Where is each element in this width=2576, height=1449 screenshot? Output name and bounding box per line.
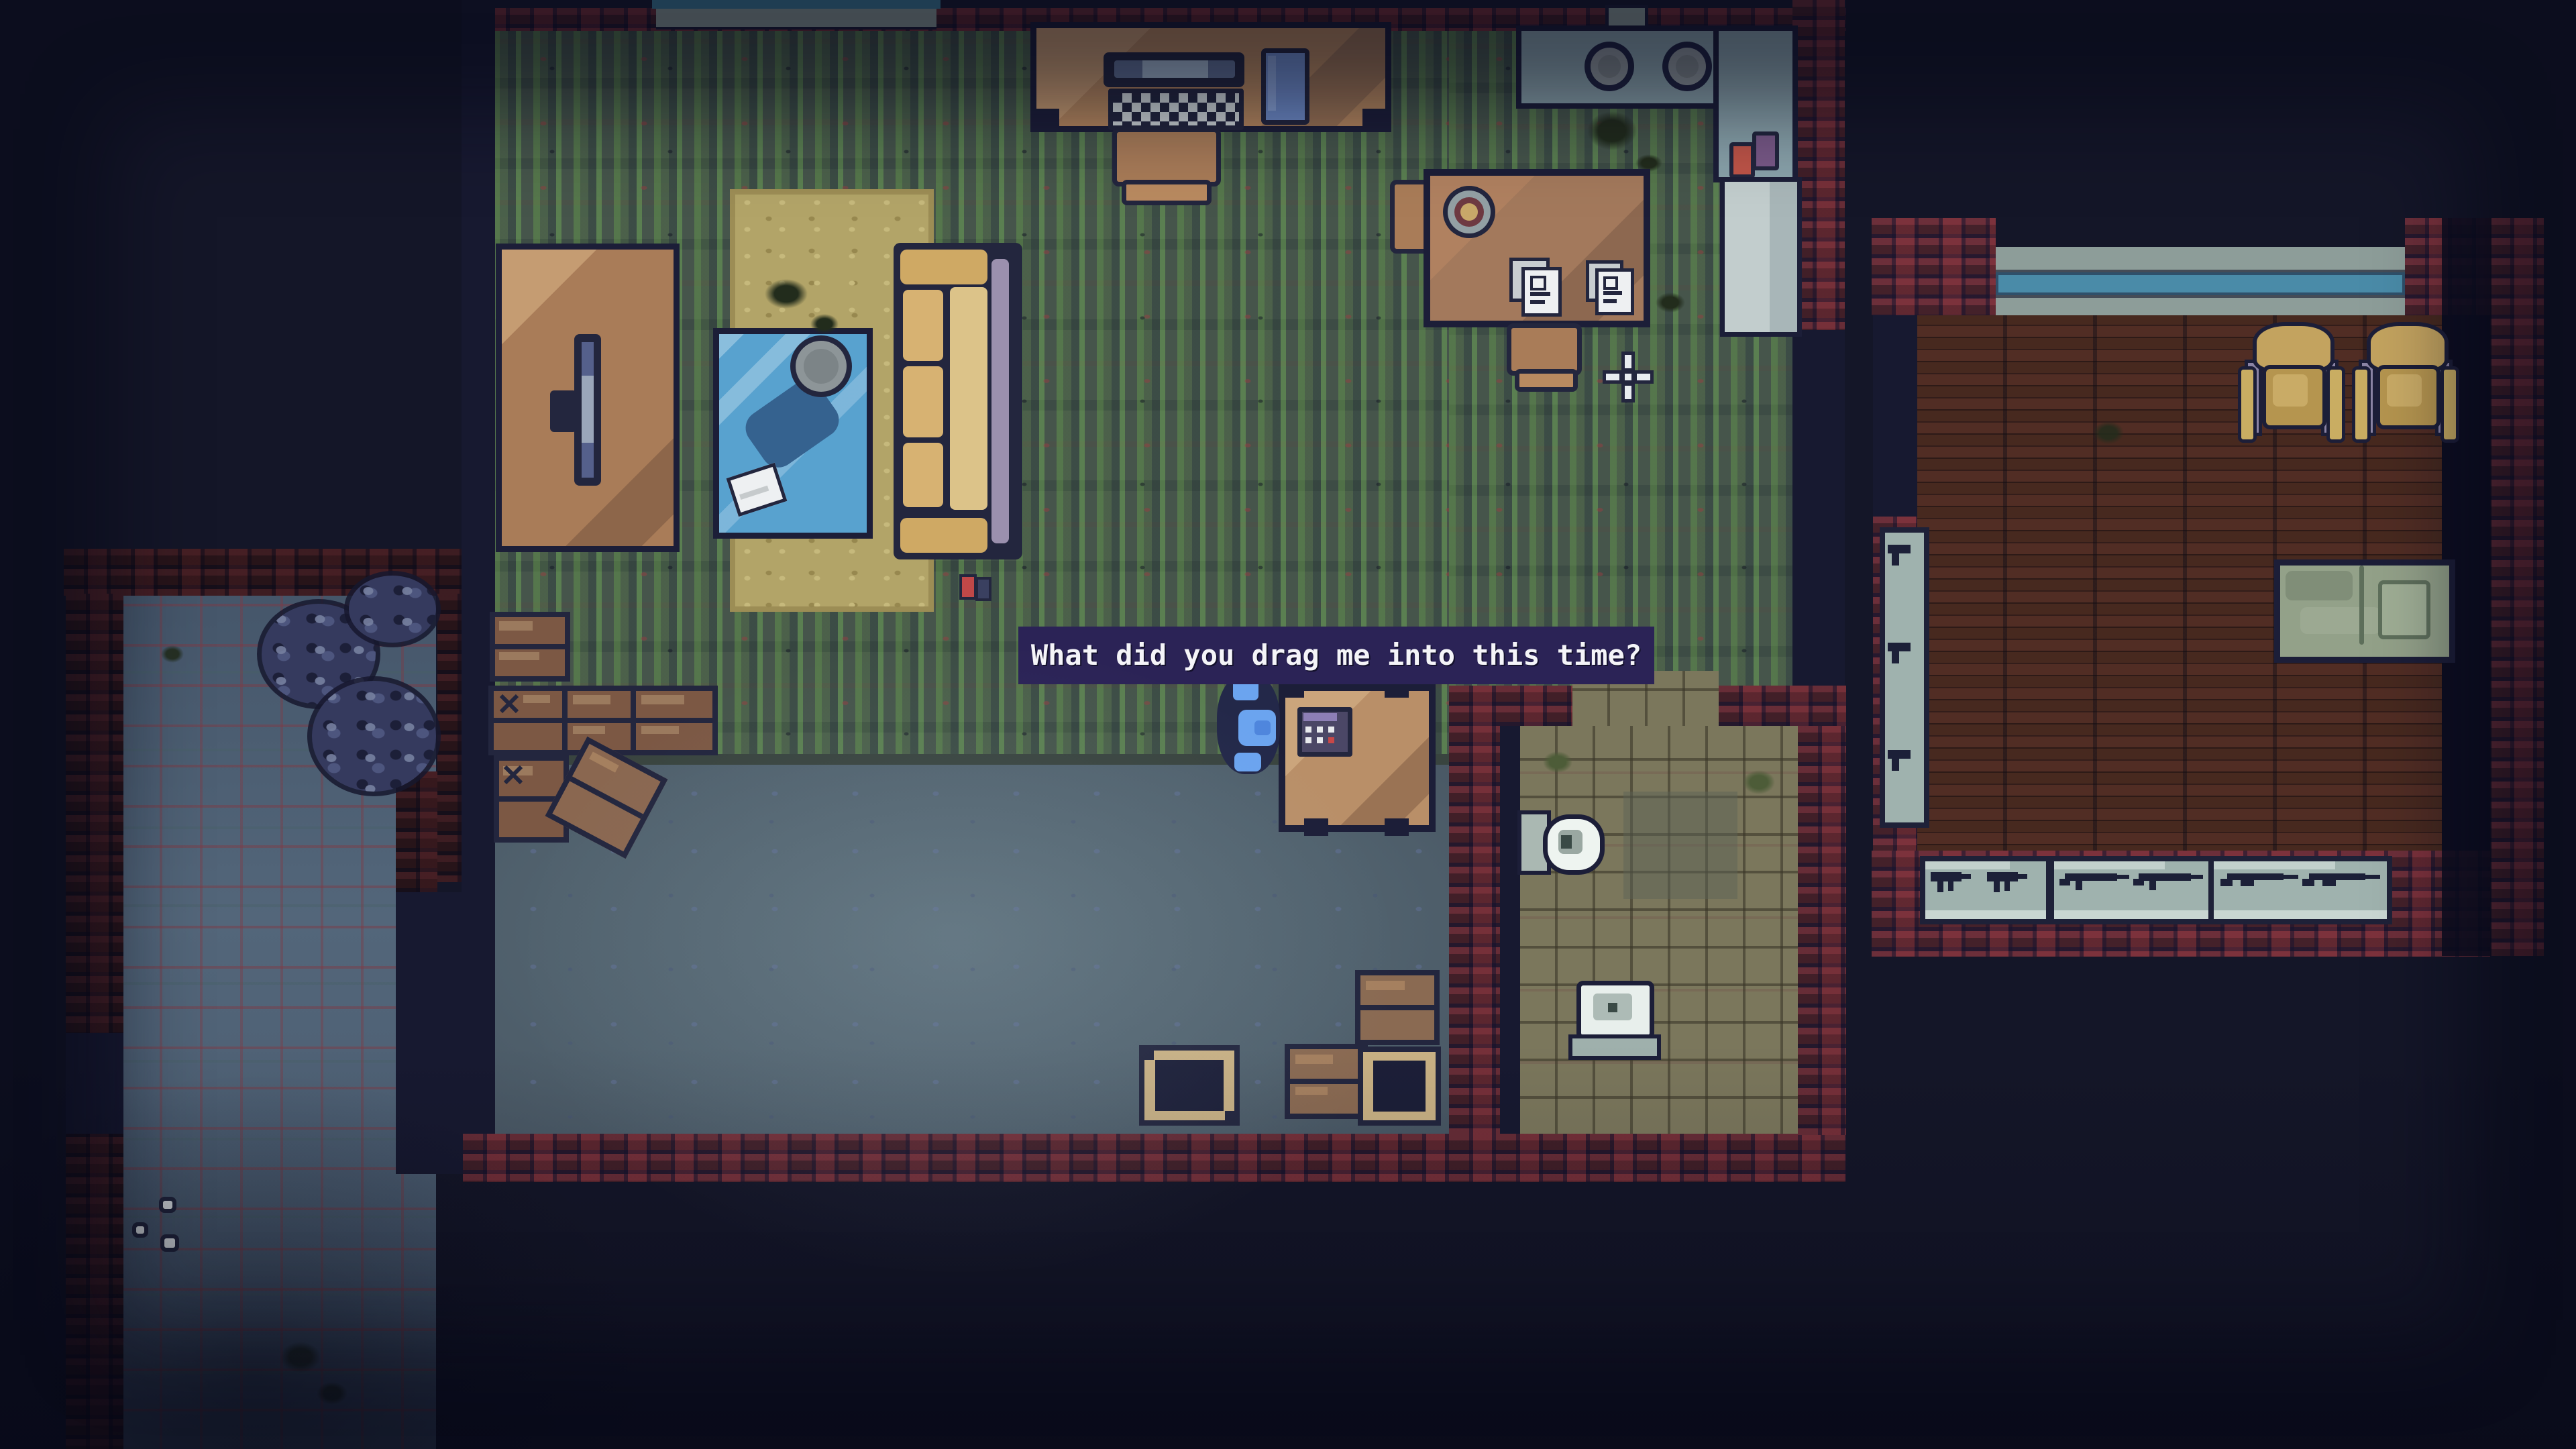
wall-gun-case[interactable]: [1880, 527, 1929, 828]
dialogue-text: What did you drag me into this time?: [1031, 639, 1642, 672]
bush[interactable]: [312, 681, 436, 792]
bathroom-wall-right: [1798, 726, 1846, 1135]
crate[interactable]: [1355, 970, 1440, 1045]
dirt-mark: [1635, 154, 1662, 172]
alley-wall-stub: [396, 771, 437, 892]
wall-bottom: [463, 1134, 1846, 1182]
bedroom-window: [1996, 247, 2405, 315]
debris: [280, 1342, 321, 1373]
debris: [317, 1382, 347, 1405]
pistol-icon: [1888, 640, 1915, 667]
sink[interactable]: [1568, 981, 1653, 1052]
crate[interactable]: [1285, 1044, 1368, 1119]
bathroom-wall-shadow: [1500, 726, 1520, 1134]
alley-wall-top: [64, 549, 493, 596]
tablet[interactable]: [1261, 48, 1309, 125]
armchair[interactable]: [2353, 319, 2455, 440]
monitor[interactable]: [1104, 52, 1244, 87]
desk-chair[interactable]: [1112, 127, 1221, 186]
pebble: [136, 1226, 144, 1234]
dark-item[interactable]: [975, 577, 991, 601]
bedroom-wall-right: [2490, 218, 2544, 956]
smg-icon: [1931, 867, 1982, 898]
crate-x[interactable]: [488, 686, 570, 755]
leaf-debris: [161, 645, 184, 663]
pistol-icon: [1888, 747, 1915, 774]
pillow: [2378, 580, 2430, 639]
shotgun-icon: [2220, 867, 2298, 898]
wall-left: [462, 0, 495, 1135]
player-character[interactable]: [1217, 674, 1280, 774]
bathroom-tile-patch: [1623, 792, 1737, 899]
bathroom-wall-left: [1449, 686, 1500, 1135]
smg-display-case[interactable]: [1920, 856, 2051, 924]
dining-chair-bottom-back[interactable]: [1515, 369, 1578, 392]
kitchen-window: [1609, 8, 1645, 30]
desk-chair-back[interactable]: [1122, 180, 1212, 205]
tv-mount: [550, 390, 577, 432]
crosshair-cursor: [1606, 355, 1650, 399]
open-crate[interactable]: [1358, 1046, 1441, 1126]
alley-wall-left: [66, 594, 123, 1449]
couch[interactable]: [894, 243, 1022, 559]
pebble: [164, 1238, 175, 1248]
hall-shadow-right: [1792, 330, 1845, 686]
pebble: [163, 1201, 172, 1209]
dirt-mark: [810, 314, 839, 334]
dirt-mark: [1656, 292, 1685, 313]
mug[interactable]: [1448, 191, 1491, 233]
calculator[interactable]: [1297, 707, 1352, 757]
open-crate[interactable]: [1139, 1045, 1240, 1126]
dialogue-box: What did you drag me into this time?: [1018, 627, 1654, 684]
burner-icon: [1585, 42, 1634, 91]
toilet[interactable]: [1517, 809, 1598, 869]
crate[interactable]: [490, 612, 570, 682]
bedroom-doorway[interactable]: [1873, 315, 1917, 517]
dining-chair-bottom[interactable]: [1507, 323, 1582, 376]
bush[interactable]: [349, 576, 436, 643]
rifle-icon: [2059, 867, 2129, 898]
tv[interactable]: [574, 334, 601, 486]
window-sill: [656, 9, 936, 27]
armchair[interactable]: [2239, 319, 2341, 440]
shotgun-display-case[interactable]: [2208, 856, 2392, 924]
dirt-mark: [1587, 111, 1637, 150]
window: [652, 0, 941, 30]
bathroom-wall-top-right: [1719, 686, 1846, 726]
toilet-bowl: [1543, 814, 1605, 875]
rifle-icon: [2133, 867, 2203, 898]
dirt-mark: [765, 279, 808, 309]
paper-stack[interactable]: [1509, 258, 1567, 317]
moss-tile: [1743, 770, 1775, 794]
burner-icon: [1662, 42, 1712, 91]
bowl[interactable]: [796, 341, 847, 392]
bedroom-wall-top-left: [1872, 218, 1996, 315]
game-viewport[interactable]: What did you drag me into this time?: [0, 0, 2576, 1449]
moss-tile: [1543, 751, 1572, 773]
window-glass: [652, 0, 941, 9]
smg-icon: [1987, 867, 2038, 898]
red-bottle[interactable]: [1729, 142, 1755, 178]
crate[interactable]: [631, 686, 718, 755]
paper-stack[interactable]: [1586, 260, 1637, 314]
pistol-icon: [1888, 542, 1915, 569]
purple-bottle[interactable]: [1752, 131, 1779, 170]
fridge[interactable]: [1720, 177, 1802, 337]
keyboard[interactable]: [1108, 89, 1244, 130]
red-can[interactable]: [959, 574, 977, 600]
rifle-display-case[interactable]: [2049, 856, 2218, 924]
bathroom-wall-top-left: [1500, 686, 1572, 726]
debris: [2093, 421, 2124, 444]
bed[interactable]: [2274, 559, 2455, 663]
shotgun-icon: [2302, 867, 2380, 898]
alley-corner-shadow-left: [66, 1033, 123, 1134]
